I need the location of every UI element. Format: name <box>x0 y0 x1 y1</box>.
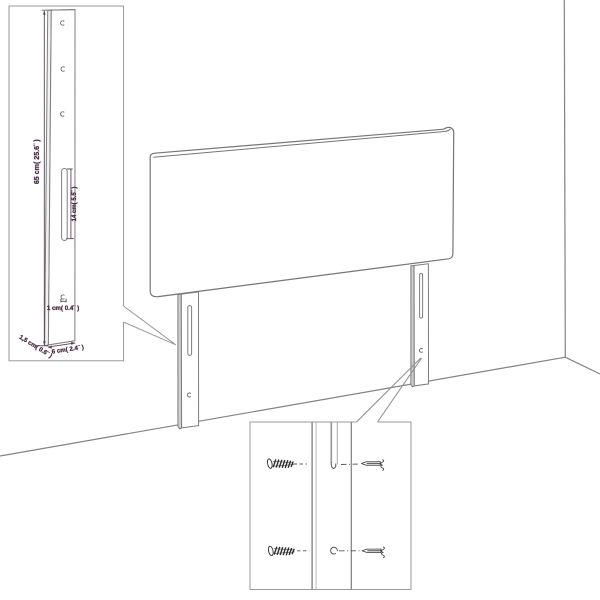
svg-text:65 cm( 25.6¨ ): 65 cm( 25.6¨ ) <box>33 139 41 185</box>
svg-text:14 cm( 5.5¨ ): 14 cm( 5.5¨ ) <box>72 187 78 222</box>
svg-text:1 cm( 0.4¨ ): 1 cm( 0.4¨ ) <box>47 305 79 312</box>
